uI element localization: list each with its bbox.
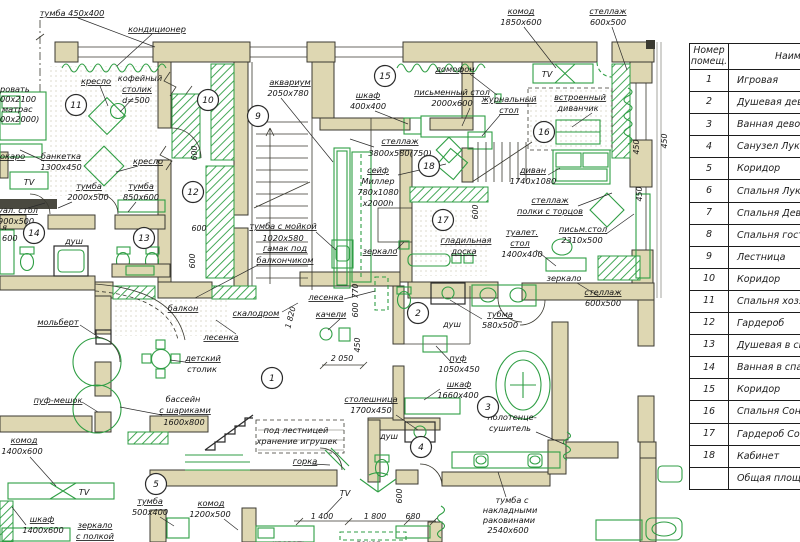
svg-text:домофон: домофон [434,64,475,74]
svg-text:матрас: матрас [2,104,33,114]
svg-text:1740x1080: 1740x1080 [510,176,557,186]
room-13: 13 [134,228,155,249]
svg-text:1400x600: 1400x600 [22,525,63,535]
svg-text:раковинами: раковинами [482,515,536,525]
svg-text:зеркало: зеркало [78,520,113,530]
table-row: 14Ванная в спальне [690,356,800,378]
table-row: 1Игровая [690,69,800,91]
table-row: 5Коридор [690,157,800,179]
aquarium [334,148,350,288]
table-row: 8Спальня гостевая [690,224,800,246]
room-18: 18 [419,156,440,177]
svg-text:1 400: 1 400 [311,512,333,521]
svg-text:банкетка: банкетка [41,151,81,161]
shelving [598,256,640,280]
svg-text:13: 13 [138,234,150,244]
svg-text:тубма: тубма [487,309,513,319]
svg-text:балкончиком: балкончиком [257,255,314,265]
svg-text:окаро: окаро [0,151,25,161]
floor-plan-drawing: 600 600 600 450 450 450 600 770 600 450 … [0,0,688,542]
svg-text:мольберт: мольберт [37,317,79,327]
svg-text:шкаф: шкаф [447,379,471,389]
svg-text:18: 18 [423,162,435,172]
svg-text:полки с торцов: полки с торцов [517,206,583,216]
tv-unit [8,483,114,499]
svg-text:TV: TV [24,177,36,187]
svg-text:гладильная: гладильная [441,235,492,245]
svg-text:16: 16 [538,128,550,138]
room-15: 15 [375,66,396,87]
room-1: 1 [262,368,283,389]
svg-text:x2000h: x2000h [362,198,394,208]
svg-text:600: 600 [190,146,199,161]
table-row: 4Санузел Луки [690,135,800,157]
svg-text:450: 450 [635,187,644,202]
svg-text:1200x500: 1200x500 [189,509,230,519]
svg-text:600: 600 [2,233,18,243]
table-row: Общая площадь [690,467,800,489]
svg-text:сушитель: сушитель [489,423,531,433]
table-row: 2Душевая девочек [690,91,800,113]
svg-text:1700x450: 1700x450 [350,405,391,415]
svg-text:декор: декор [354,538,381,542]
svg-text:2 050: 2 050 [331,354,353,363]
room-17: 17 [433,210,454,231]
svg-text:00х2100: 00х2100 [0,94,36,104]
svg-text:1 820: 1 820 [284,305,298,329]
svg-text:2310x500: 2310x500 [561,235,602,245]
svg-text:450: 450 [632,140,641,155]
svg-text:журнальный: журнальный [481,94,538,104]
svg-text:стеллаж: стеллаж [381,136,419,146]
svg-text:00х2000): 00х2000) [0,114,39,124]
shelving [410,187,488,202]
svg-text:стол: стол [499,105,519,115]
svg-text:17: 17 [437,216,449,226]
svg-text:кресло: кресло [81,76,111,86]
svg-text:туалет.: туалет. [506,227,538,237]
svg-text:1600x800: 1600x800 [163,417,204,427]
table-row: 10Коридор [690,268,800,290]
svg-text:680: 680 [406,512,421,521]
svg-text:душ: душ [64,236,84,246]
svg-text:600: 600 [395,489,404,504]
svg-text:стеллаж: стеллаж [531,195,569,205]
shkaf-1660 [405,398,460,414]
svg-text:пуф: пуф [449,353,466,363]
table-row: 13Душевая в спальне [690,334,800,356]
svg-text:доска: доска [450,246,476,256]
svg-text:ровать: ровать [0,84,30,94]
svg-text:зеркало: зеркало [547,273,582,283]
svg-text:стол: стол [510,238,530,248]
svg-text:тумба: тумба [76,181,102,191]
svg-text:600: 600 [351,303,360,318]
svg-text:1400x600: 1400x600 [1,446,42,456]
svg-text:бассейн: бассейн [166,394,201,404]
svg-text:письм.стол: письм.стол [559,224,607,234]
svg-text:TV: TV [542,69,554,79]
table-row: 3Ванная девочек [690,113,800,135]
climbing-mat [212,286,256,299]
svg-text:горка: горка [293,456,317,466]
svg-text:диванчик: диванчик [556,103,598,113]
svg-text:600: 600 [471,205,480,220]
svg-text:комод: комод [508,6,535,16]
tumba-500 [167,518,189,538]
table-row: 11Спальня хозяев [690,290,800,312]
table-row: 15Коридор [690,378,800,400]
svg-text:тумба с мойкой: тумба с мойкой [249,221,317,231]
swing [320,328,332,340]
svg-text:столешница: столешница [344,394,397,404]
svg-text:TV: TV [79,487,91,497]
svg-text:3: 3 [485,403,491,413]
vanity-2540 [452,452,560,468]
svg-text:с шариками: с шариками [159,405,211,415]
svg-text:встроенный: встроенный [554,92,607,102]
svg-text:кресло: кресло [133,156,163,166]
svg-text:лесенка: лесенка [202,332,238,342]
room-12: 12 [183,182,204,203]
svg-text:3800x580(750): 3800x580(750) [368,148,431,158]
room-11: 11 [66,95,87,116]
svg-text:TV: TV [340,488,352,498]
toilet [21,254,34,271]
svg-text:сейф: сейф [367,165,389,175]
svg-text:балкон: балкон [168,303,199,313]
svg-text:тумба с: тумба с [496,495,529,505]
room-2: 2 [408,303,429,324]
svg-text:d=500: d=500 [122,95,150,105]
svg-text:уал. стол: уал. стол [0,205,38,215]
label-konditsioner: кондиционер [128,24,186,34]
table-header-number: Номерпомещ. [690,46,728,66]
svg-text:1 800: 1 800 [364,512,386,521]
svg-text:кофейный: кофейный [118,73,163,83]
floor-plan-page: 600 600 600 450 450 450 600 770 600 450 … [0,0,800,542]
svg-text:1660x400: 1660x400 [437,390,478,400]
room-4: 4 [411,437,432,458]
table-row: 6Спальня Луки [690,179,800,201]
svg-text:600x500: 600x500 [585,298,621,308]
room-3: 3 [478,397,499,418]
svg-text:1050x450: 1050x450 [438,364,479,374]
svg-text:770: 770 [351,284,360,299]
svg-text:шкаф: шкаф [356,90,380,100]
plant [360,472,396,492]
svg-text:400x400: 400x400 [350,101,386,111]
room-16: 16 [534,122,555,143]
svg-text:10: 10 [202,96,214,106]
cabinet [596,520,642,540]
room-5: 5 [146,474,167,495]
wardrobe-shelves [206,166,234,278]
svg-text:14: 14 [28,229,40,239]
svg-text:скалодром: скалодром [233,308,280,318]
svg-text:комод: комод [198,498,225,508]
shelving [612,64,630,158]
svg-text:хранение игрушек: хранение игрушек [256,436,338,446]
svg-text:4: 4 [418,443,424,453]
svg-text:1850x600: 1850x600 [500,17,541,27]
table-header-name: Наименование [728,44,800,69]
climbing-mat [113,286,155,299]
svg-text:зеркало: зеркало [363,246,398,256]
svg-text:500x400: 500x400 [132,507,168,517]
room-14: 14 [24,223,45,244]
svg-text:580x500: 580x500 [482,320,518,330]
svg-text:столик: столик [122,84,152,94]
svg-text:качели: качели [316,309,347,319]
svg-text:душ: душ [379,431,399,441]
table-row: 9Лестница [690,246,800,268]
svg-text:тумба: тумба [128,181,154,191]
door-arc [597,62,612,77]
room-10: 10 [198,90,219,111]
svg-text:комод: комод [11,435,38,445]
svg-text:600: 600 [188,254,197,269]
kids-table [152,350,171,369]
svg-text:2050x780: 2050x780 [267,88,308,98]
slide [185,448,349,470]
table-header: Номерпомещ. Наименование [690,44,800,69]
svg-text:12: 12 [187,188,199,198]
svg-text:кровать: кровать [272,538,307,542]
svg-text:диван: диван [519,165,547,175]
svg-text:детский: детский [184,353,221,363]
wardrobe-shelves [211,64,234,160]
svg-text:столик: столик [187,364,217,374]
svg-text:стеллаж: стеллаж [589,6,627,16]
svg-text:пуф-мешок: пуф-мешок [34,395,83,405]
table-row: 18Кабинет [690,445,800,467]
svg-text:Миллер: Миллер [361,176,394,186]
svg-text:я: я [2,222,7,232]
svg-text:780x1080: 780x1080 [357,187,398,197]
svg-text:450: 450 [353,338,362,353]
room-9: 9 [248,106,269,127]
svg-text:душ: душ [442,319,462,329]
svg-text:аквариум: аквариум [269,77,310,87]
table-row: 16Спальня Сони [690,400,800,422]
svg-text:1400x400: 1400x400 [501,249,542,259]
vanity-table [546,258,586,271]
table-row: 17Гардероб Сони [690,423,800,445]
fixture [658,466,682,482]
svg-text:5: 5 [153,480,159,490]
svg-text:письменный стол: письменный стол [414,87,490,97]
svg-text:1: 1 [269,374,275,384]
svg-text:стеллаж: стеллаж [584,287,622,297]
coffee-table [468,132,492,149]
svg-text:15: 15 [379,72,391,82]
svg-text:тумба: тумба [137,496,163,506]
svg-text:1020x580: 1020x580 [262,233,303,243]
svg-text:2: 2 [415,309,421,319]
svg-text:2000x600: 2000x600 [431,98,472,108]
svg-text:накладными: накладными [483,505,538,515]
svg-text:450: 450 [660,134,669,149]
svg-text:600x500: 600x500 [590,17,626,27]
rooms-table: Номерпомещ. Наименование 1Игровая 2Душев… [689,43,800,490]
chair [590,193,624,227]
svg-text:600: 600 [192,224,207,233]
label-tumba-450: тумба 450x400 [40,8,105,18]
svg-text:1300x450: 1300x450 [40,162,81,172]
svg-text:лесенка: лесенка [307,292,343,302]
svg-text:гамак под: гамак под [263,243,307,253]
svg-text:с полкой: с полкой [76,531,115,541]
svg-text:9: 9 [255,112,261,122]
svg-text:850x600: 850x600 [123,192,159,202]
table-row: 12Гардероб [690,312,800,334]
svg-text:2540x600: 2540x600 [487,525,528,535]
svg-text:2000x500: 2000x500 [67,192,108,202]
table-row: 7Спальня Девочек [690,202,800,224]
svg-text:под лестницей: под лестницей [264,425,329,435]
svg-text:11: 11 [70,101,81,111]
svg-text:шкаф: шкаф [30,514,54,524]
shelving [128,432,168,444]
